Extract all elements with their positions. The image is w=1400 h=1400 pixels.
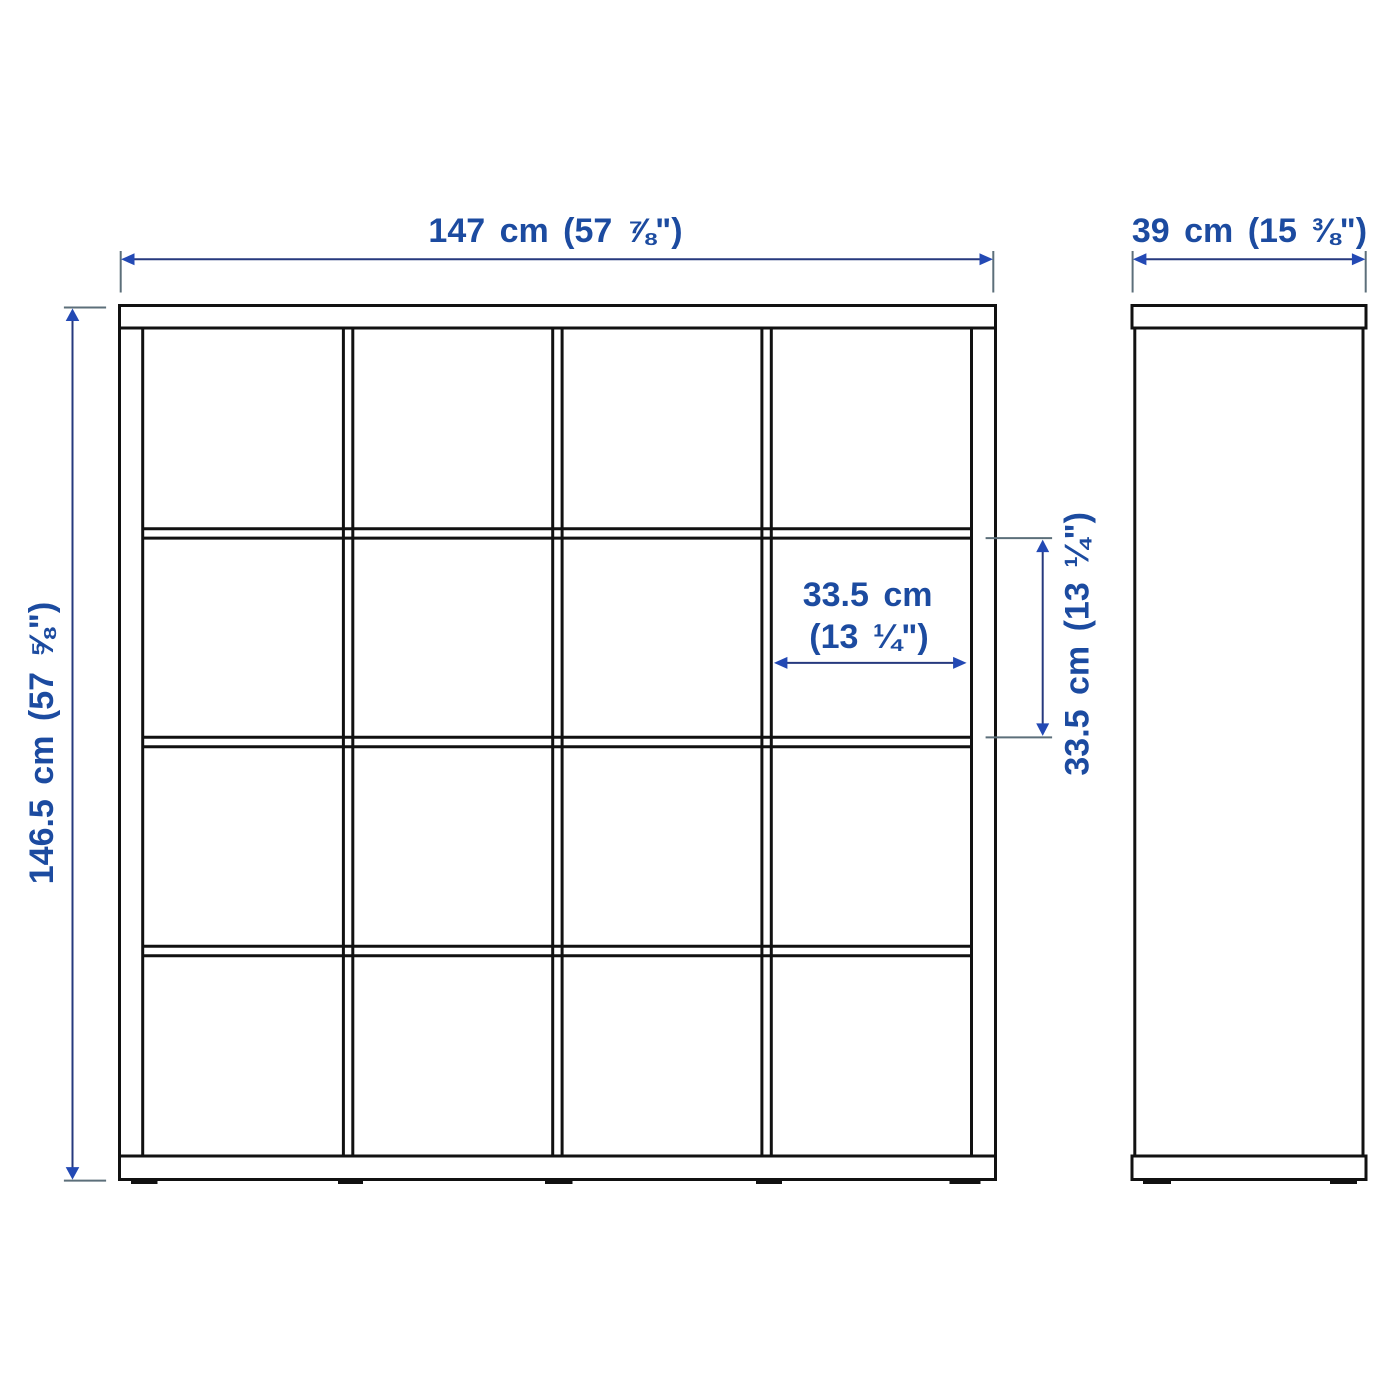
svg-text:(13 ¼"): (13 ¼") xyxy=(809,618,928,656)
svg-text:33.5 cm (13 ¼"): 33.5 cm (13 ¼") xyxy=(1059,512,1097,776)
svg-text:33.5 cm: 33.5 cm xyxy=(803,576,933,614)
svg-text:146.5 cm (57 ⅝"): 146.5 cm (57 ⅝") xyxy=(23,602,61,885)
svg-text:147 cm (57 ⅞"): 147 cm (57 ⅞") xyxy=(428,212,682,250)
svg-text:39 cm (15 ⅜"): 39 cm (15 ⅜") xyxy=(1132,212,1367,250)
